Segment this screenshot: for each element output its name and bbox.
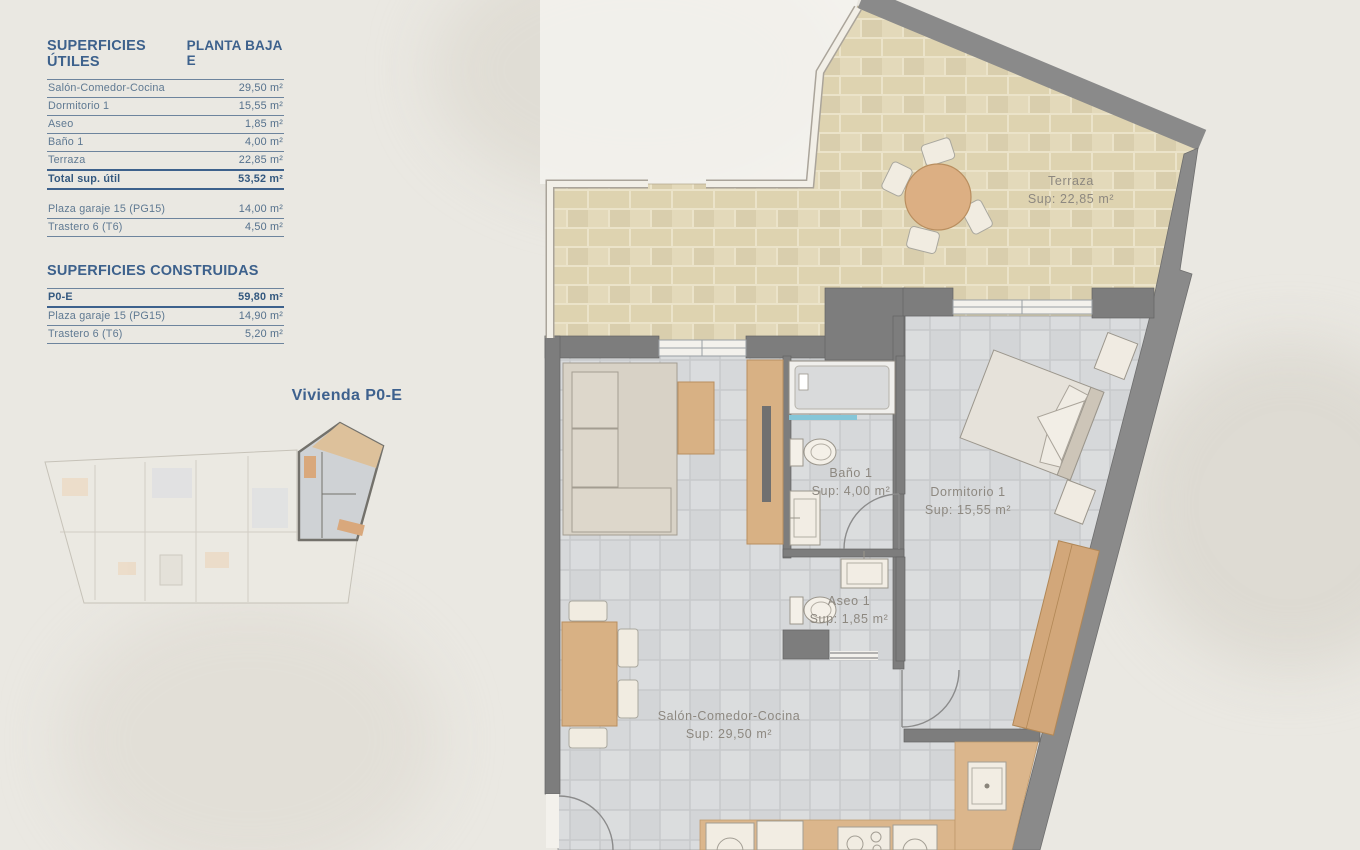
utiles-table: Salón-Comedor-Cocina 29,50 m² Dormitorio…	[47, 79, 284, 237]
hob	[838, 827, 890, 850]
table-row: Terraza 22,85 m²	[47, 152, 284, 170]
table-row: Plaza garaje 15 (PG15) 14,00 m²	[47, 201, 284, 219]
row-label: Dormitorio 1	[48, 100, 109, 112]
row-label: Terraza	[48, 154, 85, 166]
room-name: Dormitorio 1	[925, 483, 1011, 501]
overview-title: Vivienda P0-E	[292, 387, 403, 405]
construidas-table: P0-E 59,80 m² Plaza garaje 15 (PG15) 14,…	[47, 288, 284, 344]
row-value: 14,00 m²	[239, 203, 283, 215]
row-label: Plaza garaje 15 (PG15)	[48, 203, 165, 215]
row-label: Salón-Comedor-Cocina	[48, 82, 165, 94]
row-value: 14,90 m²	[239, 310, 283, 322]
table-row: Aseo 1,85 m²	[47, 116, 284, 134]
aseo-pocket-door	[830, 651, 878, 660]
sofa	[563, 363, 677, 535]
overview-highlighted-unit	[299, 423, 383, 540]
room-label-bano: Baño 1 Sup: 4,00 m²	[812, 464, 891, 500]
room-label-dormitorio: Dormitorio 1 Sup: 15,55 m²	[925, 483, 1011, 519]
row-value: 5,20 m²	[245, 328, 283, 340]
row-value: 4,00 m²	[245, 136, 283, 148]
plan-label: PLANTA BAJA E	[187, 38, 284, 68]
row-label: Trastero 6 (T6)	[48, 328, 123, 340]
table-row: Trastero 6 (T6) 5,20 m²	[47, 326, 284, 344]
room-name: Terraza	[1028, 172, 1114, 190]
row-value: 4,50 m²	[245, 221, 283, 233]
room-area: Sup: 15,55 m²	[925, 501, 1011, 519]
bathtub	[789, 361, 895, 420]
table-row: Trastero 6 (T6) 4,50 m²	[47, 219, 284, 237]
row-label: Plaza garaje 15 (PG15)	[48, 310, 165, 322]
room-name: Salón-Comedor-Cocina	[658, 707, 801, 725]
living-room-window	[659, 340, 746, 356]
tv-unit	[747, 360, 783, 544]
room-area: Sup: 1,85 m²	[810, 610, 889, 628]
row-value: 1,85 m²	[245, 118, 283, 130]
row-label: Aseo	[48, 118, 73, 130]
row-label: P0-E	[48, 291, 73, 303]
construidas-title: SUPERFICIES CONSTRUIDAS	[47, 263, 284, 279]
toilet-bano	[790, 439, 836, 466]
row-label: Baño 1	[48, 136, 83, 148]
utiles-title: SUPERFICIES ÚTILES	[47, 38, 187, 70]
total-row: Total sup. útil 53,52 m²	[47, 169, 284, 190]
row-label: Total sup. útil	[48, 173, 120, 185]
page: SUPERFICIES ÚTILES PLANTA BAJA E Salón-C…	[0, 0, 1360, 850]
row-value: 29,50 m²	[239, 82, 283, 94]
bedroom-window	[953, 300, 1092, 314]
row-value: 53,52 m²	[238, 173, 283, 185]
room-name: Aseo 1	[810, 592, 889, 610]
utiles-header: SUPERFICIES ÚTILES PLANTA BAJA E	[47, 38, 284, 70]
table-row: Salón-Comedor-Cocina 29,50 m²	[47, 80, 284, 98]
room-label-terraza: Terraza Sup: 22,85 m²	[1028, 172, 1114, 208]
room-area: Sup: 4,00 m²	[812, 482, 891, 500]
room-area: Sup: 22,85 m²	[1028, 190, 1114, 208]
table-row: Baño 1 4,00 m²	[47, 134, 284, 152]
row-label: Trastero 6 (T6)	[48, 221, 123, 233]
table-row: Dormitorio 1 15,55 m²	[47, 98, 284, 116]
row-value: 59,80 m²	[238, 291, 283, 303]
room-area: Sup: 29,50 m²	[658, 725, 801, 743]
row-value: 22,85 m²	[239, 154, 283, 166]
coffee-table	[678, 382, 714, 454]
areas-panel: SUPERFICIES ÚTILES PLANTA BAJA E Salón-C…	[47, 38, 284, 344]
room-label-salon: Salón-Comedor-Cocina Sup: 29,50 m²	[658, 707, 801, 743]
row-value: 15,55 m²	[239, 100, 283, 112]
table-row: Plaza garaje 15 (PG15) 14,90 m²	[47, 308, 284, 326]
shower-screen	[789, 415, 857, 420]
room-name: Baño 1	[812, 464, 891, 482]
tv	[762, 406, 771, 502]
table-row: P0-E 59,80 m²	[47, 289, 284, 308]
kitchen-sink	[968, 762, 1006, 810]
room-label-aseo: Aseo 1 Sup: 1,85 m²	[810, 592, 889, 628]
overview-plan	[45, 423, 383, 603]
